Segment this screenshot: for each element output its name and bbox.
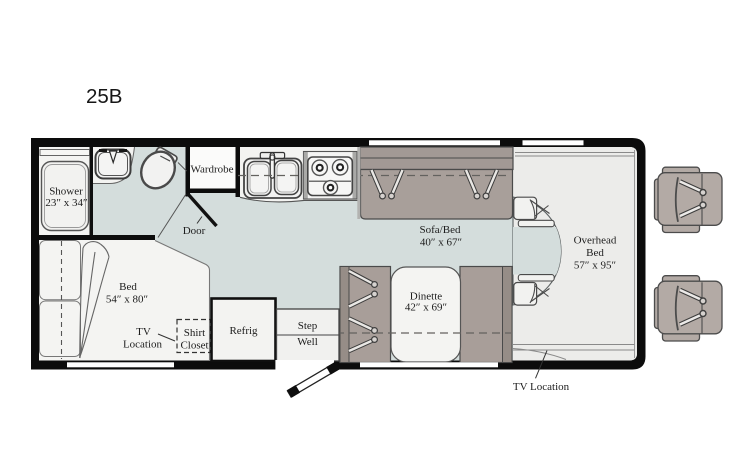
svg-text:Location: Location xyxy=(123,339,163,351)
svg-text:Wardrobe: Wardrobe xyxy=(190,164,233,176)
svg-text:Shirt: Shirt xyxy=(184,327,205,339)
svg-text:TV: TV xyxy=(136,326,151,338)
svg-text:Well: Well xyxy=(297,336,318,348)
svg-text:Overhead: Overhead xyxy=(574,235,617,247)
svg-text:54″ x 80″: 54″ x 80″ xyxy=(106,294,148,306)
svg-text:25B: 25B xyxy=(86,85,122,108)
svg-text:40″ x 67″: 40″ x 67″ xyxy=(420,237,462,249)
svg-text:Step: Step xyxy=(298,320,318,332)
svg-text:Sofa/Bed: Sofa/Bed xyxy=(420,224,461,236)
svg-text:Door: Door xyxy=(183,225,206,237)
svg-text:TV Location: TV Location xyxy=(513,381,570,393)
svg-text:Closet: Closet xyxy=(180,340,208,352)
svg-text:Refrig: Refrig xyxy=(229,325,258,337)
svg-text:42″ x 69″: 42″ x 69″ xyxy=(405,302,447,314)
svg-text:Bed: Bed xyxy=(586,247,604,259)
svg-text:23″ x 34″: 23″ x 34″ xyxy=(45,197,87,209)
svg-text:57″ x 95″: 57″ x 95″ xyxy=(574,260,616,272)
svg-text:Shower: Shower xyxy=(49,186,83,198)
svg-text:Bed: Bed xyxy=(119,281,137,293)
